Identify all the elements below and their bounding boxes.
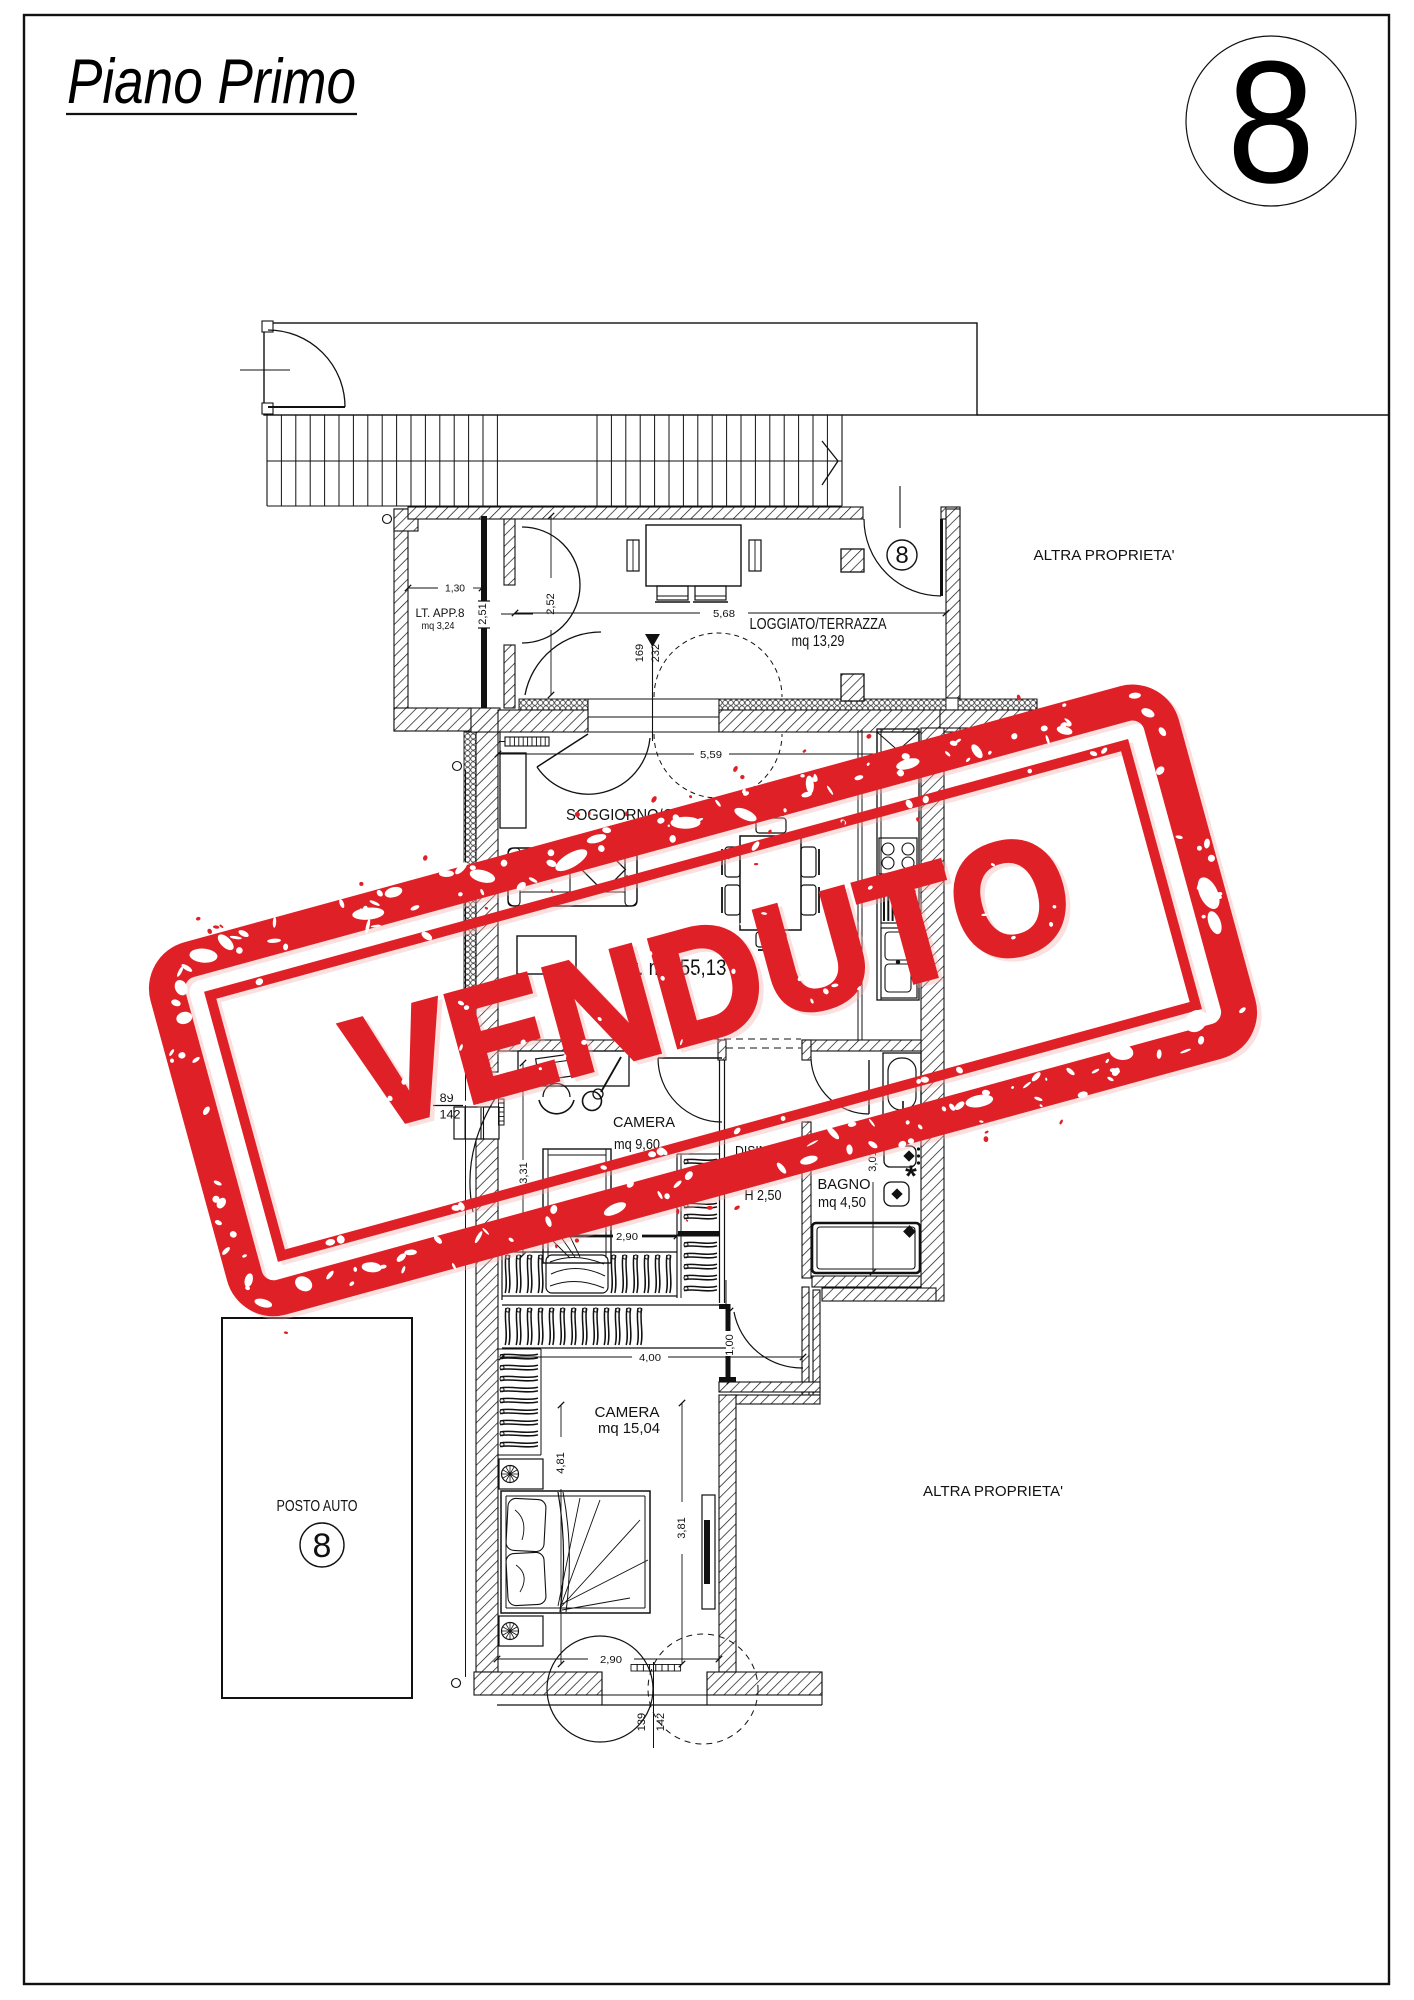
svg-text:LT. APP.8: LT. APP.8 <box>416 606 465 620</box>
svg-text:*: * <box>905 1160 917 1193</box>
svg-text:BAGNO: BAGNO <box>818 1177 871 1193</box>
svg-text:8: 8 <box>1227 24 1315 219</box>
svg-text:1,30: 1,30 <box>445 583 465 595</box>
svg-text:2,90: 2,90 <box>600 1654 622 1666</box>
svg-text:ALTRA PROPRIETA': ALTRA PROPRIETA' <box>1034 547 1175 564</box>
svg-text:2,51: 2,51 <box>477 603 489 624</box>
svg-text:232: 232 <box>650 644 662 662</box>
svg-text:5,68: 5,68 <box>713 608 735 620</box>
svg-text:LOGGIATO/TERRAZZA: LOGGIATO/TERRAZZA <box>750 616 887 633</box>
svg-text:mq 13,29: mq 13,29 <box>792 633 845 650</box>
svg-text:mq 15,04: mq 15,04 <box>598 1421 660 1437</box>
svg-text:CAMERA: CAMERA <box>613 1115 675 1131</box>
svg-text:8: 8 <box>313 1527 332 1565</box>
svg-text:5,59: 5,59 <box>700 749 722 761</box>
svg-text:1,00: 1,00 <box>724 1334 736 1355</box>
svg-text:3,31: 3,31 <box>518 1162 530 1183</box>
svg-text:3,81: 3,81 <box>676 1517 688 1538</box>
svg-text:4,81: 4,81 <box>555 1452 567 1473</box>
svg-text:2,90: 2,90 <box>616 1231 638 1243</box>
svg-text:169: 169 <box>634 644 646 662</box>
svg-text:mq 4,50: mq 4,50 <box>818 1195 866 1211</box>
svg-text:Piano Primo: Piano Primo <box>67 47 356 117</box>
svg-text:POSTO AUTO: POSTO AUTO <box>277 1498 358 1515</box>
svg-text:8: 8 <box>895 542 908 569</box>
svg-text:mq 3,24: mq 3,24 <box>422 620 455 632</box>
svg-text:CAMERA: CAMERA <box>595 1405 660 1421</box>
svg-text:139: 139 <box>636 1713 648 1731</box>
svg-text:4,00: 4,00 <box>639 1352 661 1364</box>
svg-text:2,52: 2,52 <box>545 593 557 614</box>
svg-text:ALTRA PROPRIETA': ALTRA PROPRIETA' <box>923 1483 1063 1500</box>
svg-text:142: 142 <box>655 1713 667 1731</box>
